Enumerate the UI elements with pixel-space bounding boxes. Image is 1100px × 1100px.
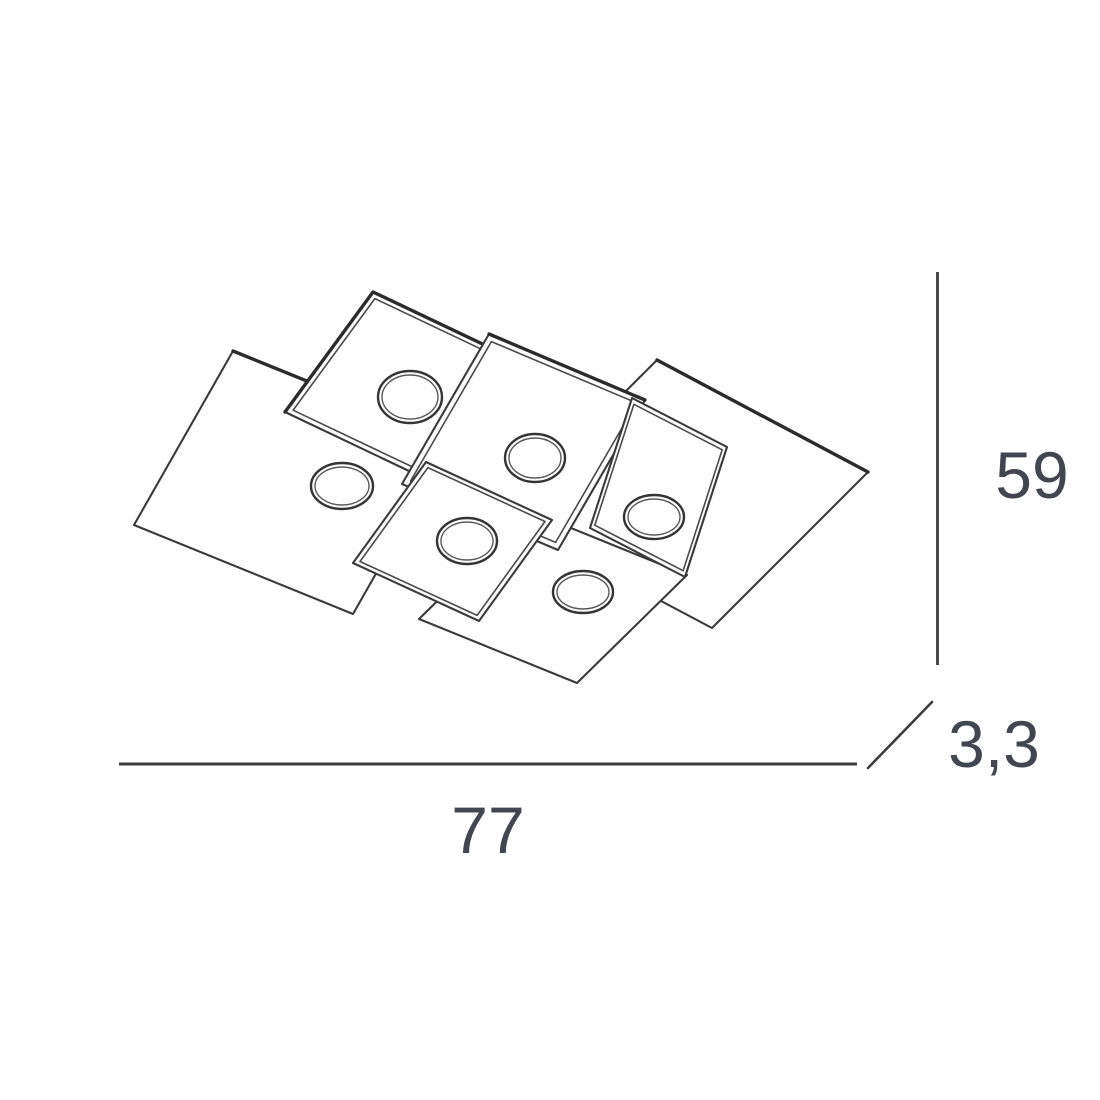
light-raised-top <box>378 371 442 423</box>
light-circle <box>311 463 373 509</box>
light-circle <box>378 371 442 423</box>
light-raised-right <box>624 495 684 539</box>
light-raised-front <box>437 518 497 564</box>
light-circle <box>553 571 613 613</box>
lamp-drawing <box>134 292 868 683</box>
light-circle <box>505 434 565 482</box>
light-raised-middle <box>505 434 565 482</box>
thickness-leader-slash <box>868 702 932 768</box>
light-circle <box>624 495 684 539</box>
light-circle <box>437 518 497 564</box>
height-dimension-label: 59 <box>995 438 1068 512</box>
light-back-bottom <box>553 571 613 613</box>
light-back-left <box>311 463 373 509</box>
thickness-dimension-label: 3,3 <box>948 707 1040 781</box>
lamp-dimension-diagram: 59 77 3,3 <box>0 0 1100 1100</box>
width-dimension-label: 77 <box>451 793 524 867</box>
dimension-drawing-canvas: 59 77 3,3 <box>0 0 1100 1100</box>
